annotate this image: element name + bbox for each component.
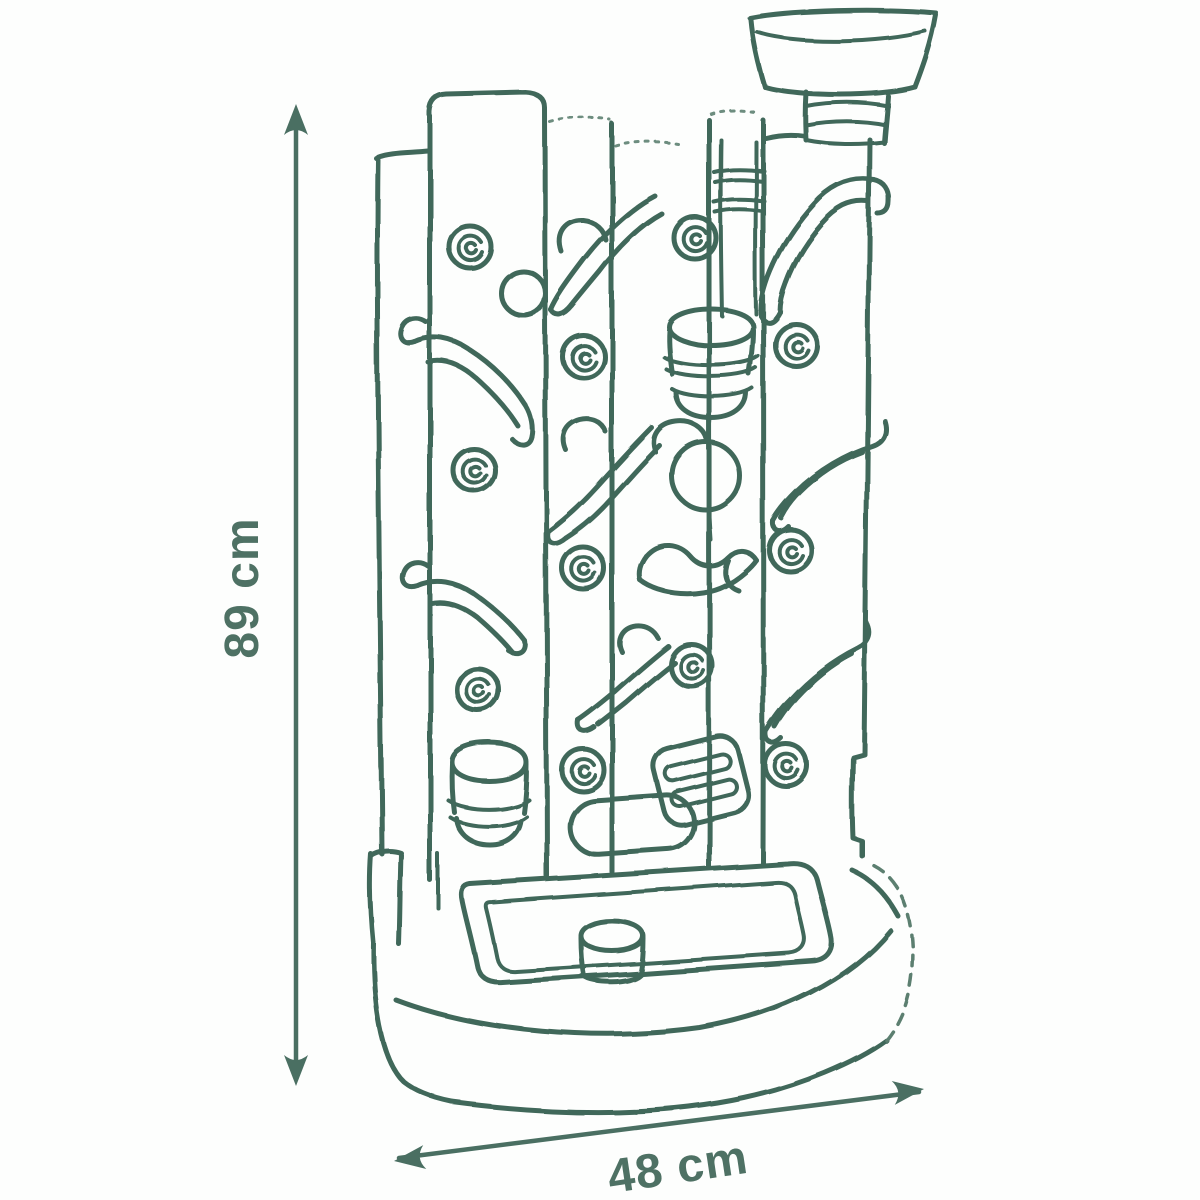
height-dimension-arrow xyxy=(284,104,308,1086)
funnel xyxy=(750,10,936,144)
double-scoop xyxy=(639,545,756,593)
base-basin xyxy=(370,851,912,1112)
collection-cup xyxy=(448,743,528,844)
marble-tube xyxy=(714,140,764,316)
big-marble xyxy=(654,418,740,540)
product-sketch xyxy=(0,0,1200,1200)
marble xyxy=(501,271,545,315)
paddle-block xyxy=(650,732,752,828)
product-dimension-diagram: 89 cm 48 cm xyxy=(0,0,1200,1200)
height-dimension-label: 89 cm xyxy=(213,488,273,688)
